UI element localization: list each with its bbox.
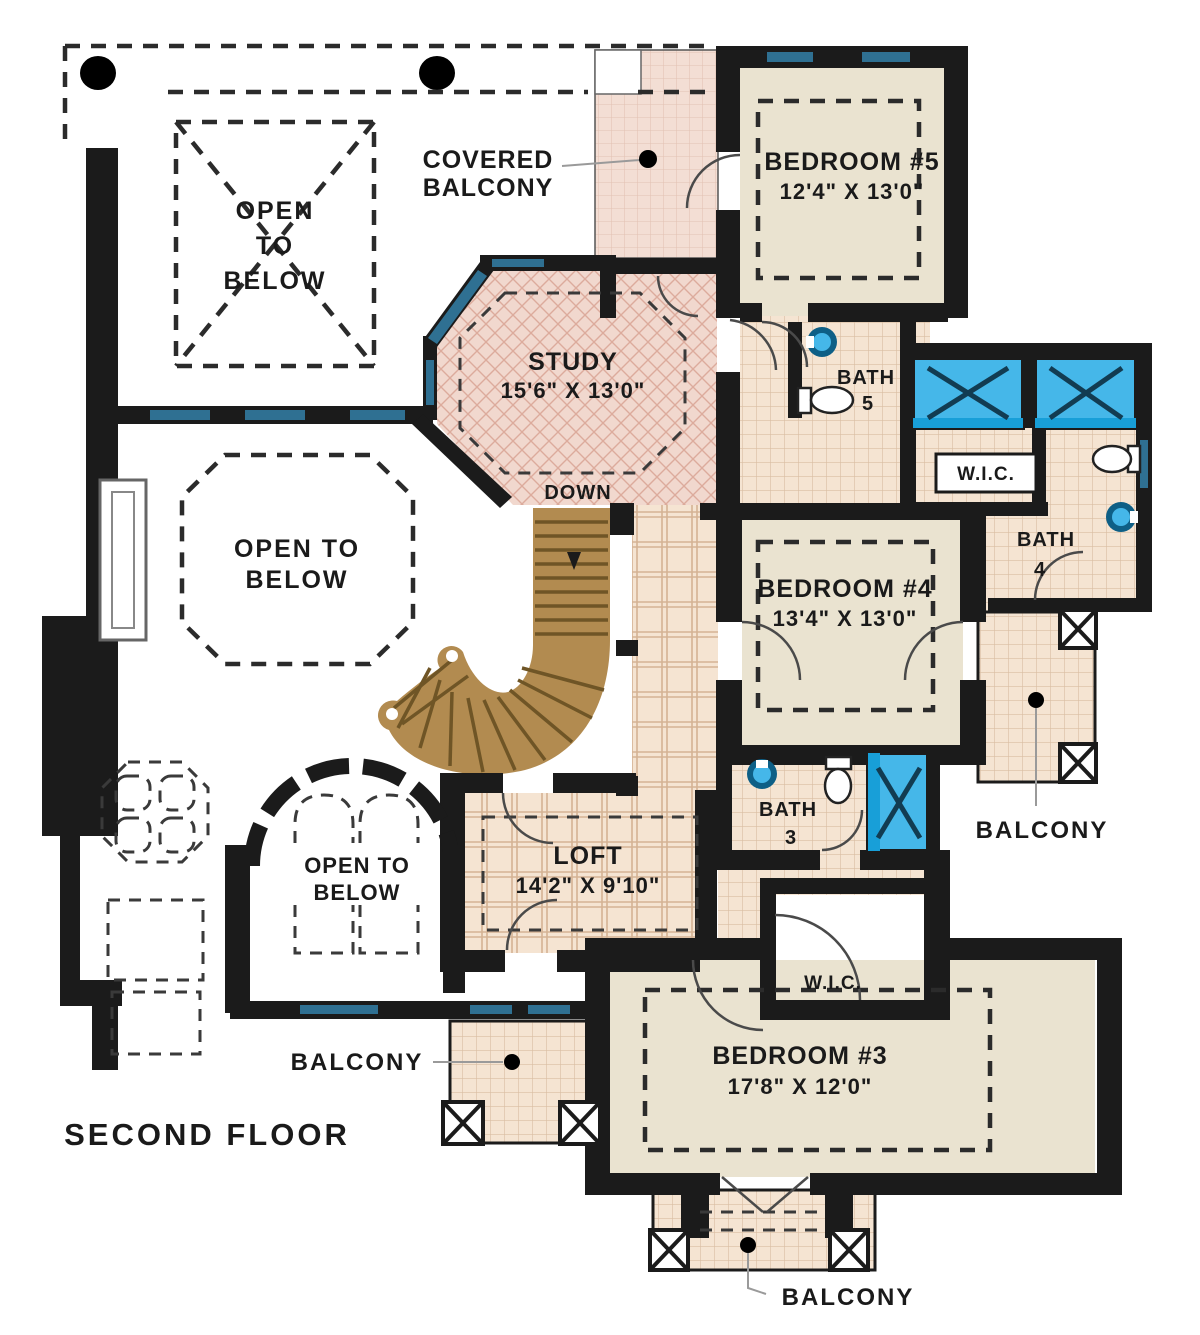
window [245, 410, 305, 420]
stair-newel-cap [386, 708, 398, 720]
label-bedroom5-dims: 12'4" X 13'0" [780, 179, 925, 204]
column-x [650, 1230, 688, 1270]
label-loft: LOFT [553, 842, 622, 870]
window [767, 52, 813, 62]
label-open-below-top-1: OPEN [236, 197, 315, 225]
column-x [560, 1102, 600, 1144]
window [528, 1005, 570, 1014]
window [470, 1005, 512, 1014]
label-bath4: BATH [1017, 529, 1075, 551]
label-bath4-num: 4 [1034, 559, 1046, 581]
label-bath3: BATH [759, 799, 817, 821]
label-bedroom4: BEDROOM #4 [757, 575, 932, 603]
label-open-below-top-2: TO [256, 232, 294, 260]
label-study-dims: 15'6" X 13'0" [501, 378, 646, 403]
wic-upper-label: W.I.C. [936, 454, 1036, 492]
arch-dash [295, 795, 353, 843]
hall-floor [632, 505, 718, 795]
leader-dot [1028, 692, 1044, 708]
label-open-below-arch-2: BELOW [314, 880, 401, 905]
leader-dot [504, 1054, 520, 1070]
column-x [830, 1230, 868, 1270]
label-bedroom5: BEDROOM #5 [764, 148, 939, 176]
column-dot [419, 56, 455, 90]
label-balcony-lower-left: BALCONY [291, 1049, 424, 1076]
window [492, 259, 544, 267]
leader-dot [639, 150, 657, 168]
window [350, 410, 405, 420]
toilet-bath4 [1093, 446, 1140, 472]
arch-wall [252, 766, 452, 866]
column-dot [80, 56, 116, 90]
label-floor-title: SECOND FLOOR [64, 1117, 350, 1152]
label-covered-balcony-2: BALCONY [423, 174, 554, 202]
fireplace [100, 480, 146, 640]
label-open-below-top-3: BELOW [223, 267, 326, 295]
covered-balcony-notch [595, 50, 641, 94]
label-open-below-mid-1: OPEN TO [234, 535, 360, 563]
label-open-below-mid-2: BELOW [245, 566, 348, 594]
label-wic-upper: W.I.C. [957, 464, 1015, 485]
shower-bath5-b [1035, 358, 1136, 428]
stair-newel-cap [446, 650, 458, 662]
window [862, 52, 910, 62]
column-x [443, 1102, 483, 1144]
label-bedroom3-dims: 17'8" X 12'0" [728, 1074, 873, 1099]
label-down: DOWN [544, 482, 611, 504]
toilet-bath3 [825, 757, 851, 803]
label-balcony-right: BALCONY [976, 817, 1109, 844]
toilet-bath5 [798, 387, 853, 413]
sink-bath3 [747, 759, 777, 789]
floor-plan-page: COVERED BALCONY OPEN TO BELOW STUDY 15'6… [0, 0, 1200, 1335]
arch-dash [295, 905, 353, 953]
window [150, 410, 210, 420]
column-x [1060, 610, 1096, 648]
label-bath3-num: 3 [785, 827, 797, 849]
window [300, 1005, 378, 1014]
label-loft-dims: 14'2" X 9'10" [516, 873, 661, 898]
shower-bath5-a [913, 358, 1023, 428]
spiral-staircase [378, 508, 610, 775]
label-covered-balcony-1: COVERED [423, 146, 554, 174]
label-bedroom4-dims: 13'4" X 13'0" [773, 606, 918, 631]
label-bath5-num: 5 [862, 393, 874, 415]
label-open-below-arch-1: OPEN TO [304, 853, 410, 878]
label-bath5: BATH [837, 367, 895, 389]
planter-box [108, 900, 203, 980]
label-balcony-bottom: BALCONY [782, 1284, 915, 1311]
leader-dot [740, 1237, 756, 1253]
label-bedroom3: BEDROOM #3 [712, 1042, 887, 1070]
arch-dash [360, 795, 418, 843]
column-x [1060, 744, 1096, 782]
label-study: STUDY [528, 348, 618, 376]
floor-plan-drawing: COVERED BALCONY OPEN TO BELOW STUDY 15'6… [0, 0, 1200, 1335]
window [426, 360, 434, 405]
label-wic-lower: W.I.C. [804, 973, 862, 994]
stair-body [378, 508, 610, 775]
arch-dash [360, 905, 418, 953]
planter-box [112, 992, 200, 1054]
shower-bath3 [868, 753, 928, 851]
